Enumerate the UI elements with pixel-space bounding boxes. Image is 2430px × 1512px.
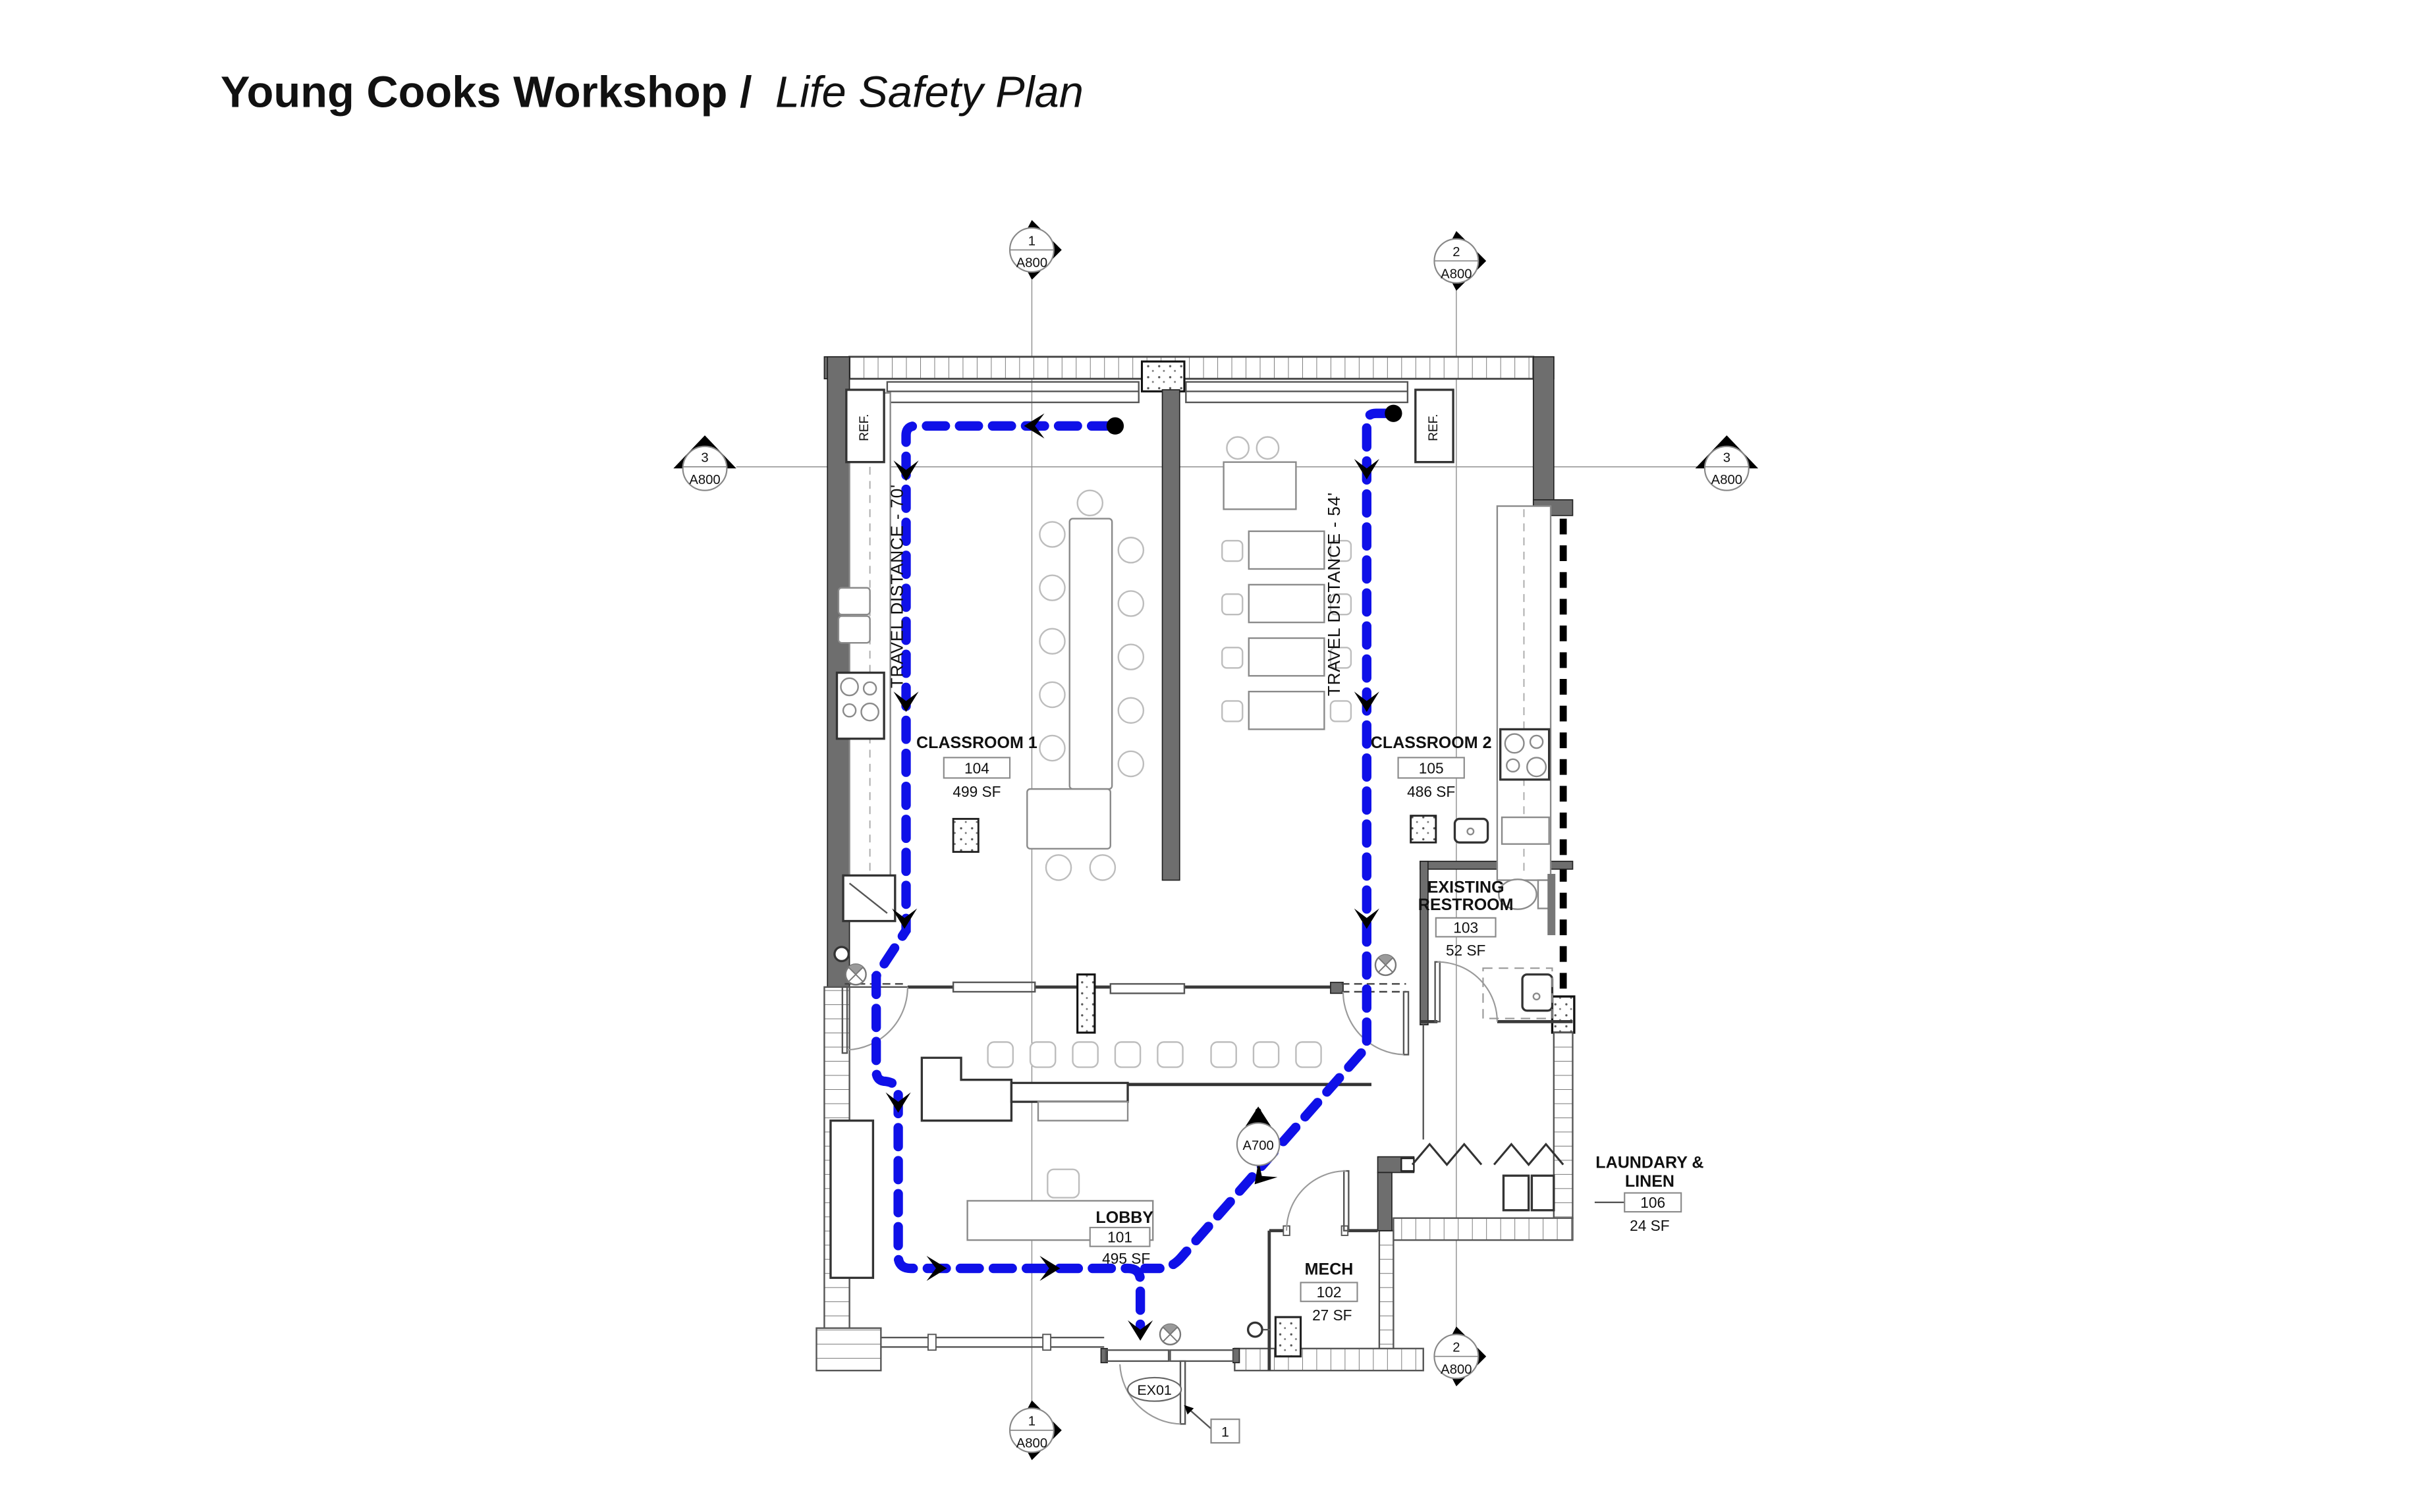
keynote-tag: 1 [1184,1405,1240,1443]
room-number: 105 [1419,759,1444,776]
dryer [1532,1175,1553,1210]
room-label-restroom: EXISTING RESTROOM 103 52 SF [1418,878,1514,959]
svg-text:2: 2 [1452,245,1460,259]
section-marker-bottom-right: 2 A800 [1434,1326,1486,1386]
room-area: 486 SF [1407,783,1455,800]
room-label-lobby: LOBBY 101 495 SF [1090,1208,1154,1267]
floor-plan-canvas: Young Cooks Workshop / Life Safety Plan [0,0,2430,1512]
page-title-project: Young Cooks Workshop / [221,68,752,117]
classroom1-island-and-stools [1027,491,1144,880]
svg-text:A800: A800 [1711,473,1742,487]
room-number: 101 [1107,1229,1132,1246]
room-area: 24 SF [1630,1217,1669,1234]
room-name-line1: EXISTING [1427,878,1505,897]
room-number: 102 [1317,1283,1342,1301]
svg-text:1: 1 [1221,1424,1229,1440]
svg-text:A800: A800 [689,473,720,487]
section-marker-bottom-left: 1 A800 [1010,1401,1062,1461]
room-name: CLASSROOM 2 [1371,734,1492,752]
classroom2-tables-and-casework [1222,390,1551,880]
svg-text:A800: A800 [1441,267,1472,281]
room-name-line2: LINEN [1625,1172,1674,1191]
page-title-document: Life Safety Plan [775,68,1084,117]
exit-sign-icon [1160,1324,1180,1345]
exit-sign-icon [846,964,866,985]
svg-text:1: 1 [1028,1415,1036,1429]
svg-text:2: 2 [1452,1341,1460,1355]
wall-device-icon [835,947,848,961]
exit-sign-icon [1375,955,1396,975]
svg-text:EX01: EX01 [1137,1382,1172,1398]
room-number: 103 [1453,919,1478,936]
exit-door-tag: EX01 [1128,1378,1181,1401]
room-name: CLASSROOM 1 [916,734,1037,752]
svg-text:A700: A700 [1242,1139,1273,1153]
page-title: Young Cooks Workshop / Life Safety Plan [221,68,1084,117]
svg-text:3: 3 [701,451,708,466]
egress-start-point-1 [1107,418,1124,435]
room-label-mech: MECH 102 27 SF [1301,1260,1358,1324]
room-area: 52 SF [1446,942,1485,959]
section-marker-top-right: 2 A800 [1434,231,1486,291]
svg-text:A800: A800 [1016,1436,1047,1451]
svg-text:A800: A800 [1016,256,1047,271]
room-name-line2: RESTROOM [1418,896,1514,914]
room-label-classroom-2: CLASSROOM 2 105 486 SF [1371,734,1492,800]
svg-text:3: 3 [1723,451,1730,466]
refrigerator-label-2: REF. [1427,414,1441,441]
room-label-classroom-1: CLASSROOM 1 104 499 SF [916,734,1037,800]
room-area: 495 SF [1102,1250,1150,1267]
room-name: LOBBY [1095,1208,1153,1227]
travel-distance-label-1: TRAVEL DISTANCE - 70' [887,484,907,688]
water-heater [1275,1317,1300,1357]
room-name: MECH [1305,1260,1354,1279]
svg-text:1: 1 [1028,234,1036,248]
callout-a700: 2 A700 [1237,1106,1279,1166]
room-area: 499 SF [953,783,1001,800]
room-name-line1: LAUNDARY & [1595,1153,1703,1172]
egress-start-point-2 [1385,405,1402,422]
washer [1503,1175,1528,1210]
refrigerator-label-1: REF. [858,414,871,441]
section-marker-left: 3 A800 [673,435,736,491]
svg-text:A800: A800 [1441,1363,1472,1377]
section-marker-top-left: 1 A800 [1010,220,1062,280]
room-number: 106 [1640,1194,1665,1211]
room-number: 104 [964,759,989,776]
room-label-laundry: LAUNDARY & LINEN 106 24 SF [1595,1153,1704,1233]
room-area: 27 SF [1312,1307,1352,1324]
sink [1522,975,1552,1011]
section-marker-right: 3 A800 [1696,435,1758,491]
travel-distance-label-2: TRAVEL DISTANCE - 54' [1324,492,1344,696]
life-safety-plan-sheet: Young Cooks Workshop / Life Safety Plan [0,0,2430,1512]
